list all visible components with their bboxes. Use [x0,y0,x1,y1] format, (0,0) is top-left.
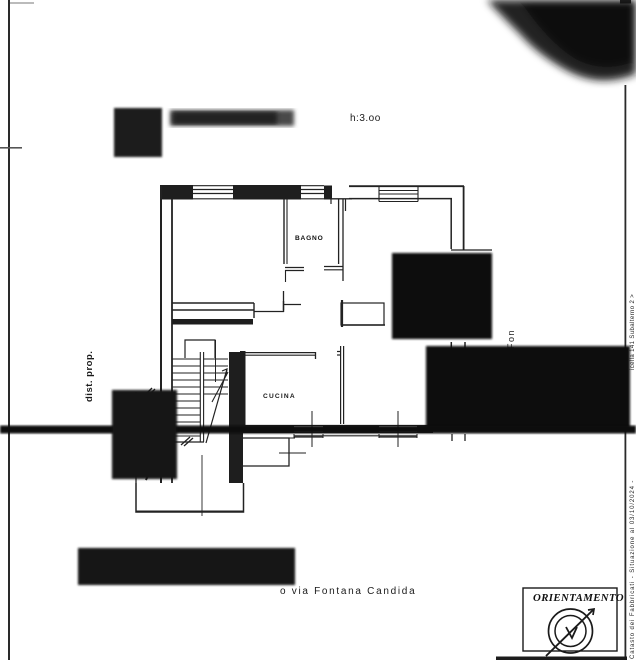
svg-text:o via Fontana Candida: o via Fontana Candida [280,586,416,597]
svg-text:ORIENTAMENTO: ORIENTAMENTO [533,592,624,604]
svg-text:dist. prop.: dist. prop. [84,351,95,402]
svg-text:BAGNO: BAGNO [295,235,324,242]
svg-text:CUCINA: CUCINA [263,393,296,400]
svg-text:h:3.oo: h:3.oo [350,113,381,124]
svg-text:icella 141 Subalterno 2 >: icella 141 Subalterno 2 > [630,294,636,370]
svg-text:Catasto dei Fabbricati - Situa: Catasto dei Fabbricati - Situazione al 0… [630,480,636,659]
